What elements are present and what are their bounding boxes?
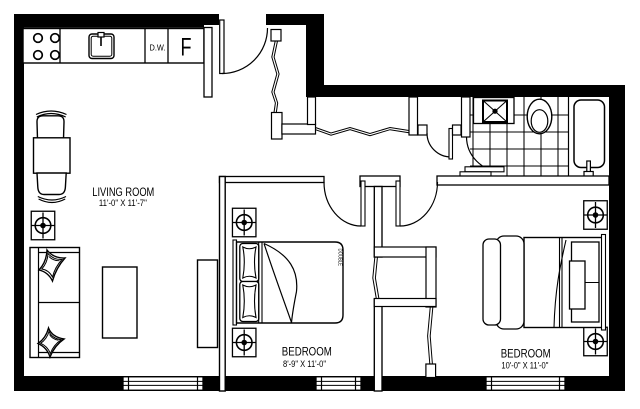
svg-text:10'-0" X 11'-0": 10'-0" X 11'-0" [501,361,548,371]
svg-text:BEDROOM: BEDROOM [501,347,551,361]
svg-text:8'-9" X 11'-0": 8'-9" X 11'-0" [283,359,326,369]
svg-text:F: F [181,34,192,62]
svg-text:D.W.: D.W. [150,44,166,53]
svg-text:DOUBLE: DOUBLE [337,249,343,267]
svg-text:LIVING ROOM: LIVING ROOM [92,185,154,199]
svg-text:BEDROOM: BEDROOM [282,345,332,359]
svg-text:11'-0" X 11'-7": 11'-0" X 11'-7" [99,198,147,208]
